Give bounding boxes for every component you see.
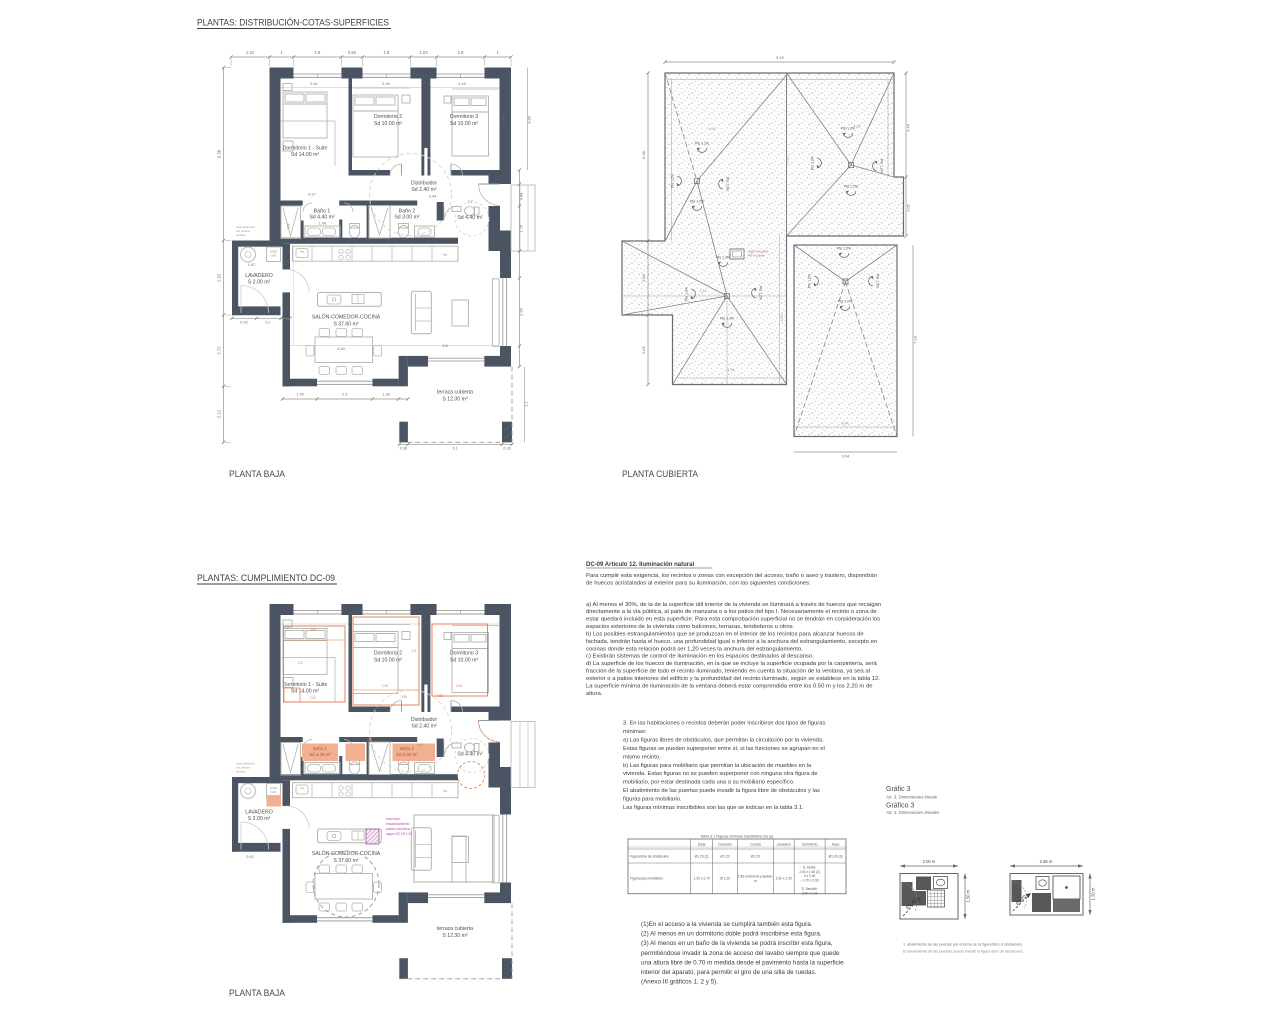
svg-text:Ø1.20: Ø1.20 [721,855,730,859]
svg-text:1. abatimiento de las puertas: 1. abatimiento de las puertas por encima… [903,943,1022,947]
svg-text:4.98: 4.98 [502,117,506,124]
svg-text:(Anexo III gráficos 1, 2 y 5).: (Anexo III gráficos 1, 2 y 5). [641,979,718,986]
svg-text:Art. 3. Dimensiones lineale: Art. 3. Dimensiones lineale [886,795,938,800]
svg-text:0.88: 0.88 [417,743,424,747]
svg-text:c) Existirán sistemas de contr: c) Existirán sistemas de control de ilum… [586,654,814,660]
svg-text:6.20: 6.20 [786,157,790,164]
svg-text:Lavadero: Lavadero [777,843,791,847]
svg-text:fracción de la superficie de t: fracción de la superficie de todo el rec… [586,669,870,675]
svg-text:PLANTAS: CUMPLIMIENTO DC-09: PLANTAS: CUMPLIMIENTO DC-09 [197,573,335,584]
svg-text:b) Los posibles estrangulamien: b) Los posibles estrangulamientos que se… [586,632,864,638]
svg-text:PLANTA CUBIERTA: PLANTA CUBIERTA [622,469,699,480]
svg-text:2.56: 2.56 [520,308,524,315]
svg-text:Estas figuras se pueden superp: Estas figuras se pueden superponer entre… [623,746,825,752]
svg-text:una altura libre de 0.70 m med: una altura libre de 0.70 m medida desde … [641,959,844,966]
svg-text:Comedor: Comedor [718,843,733,847]
svg-text:1.67: 1.67 [248,263,255,267]
svg-text:0.36: 0.36 [503,447,510,451]
svg-text:Sd 4.40 m²: Sd 4.40 m² [309,752,331,757]
svg-text:Las figuras mínimas inscribibl: Las figuras mínimas inscribibles son las… [623,805,804,811]
svg-text:3.94: 3.94 [842,454,851,459]
svg-text:0.1: 0.1 [265,321,270,325]
svg-text:1.8: 1.8 [314,50,320,55]
svg-text:Para cumplir esta exigencia, l: Para cumplir esta exigencia, los recinto… [586,573,877,579]
svg-text:Figura para mobiliario: Figura para mobiliario [630,877,663,881]
svg-text:3. En las habitaciones o recin: 3. En las habitaciones o recintos deberá… [623,721,825,727]
svg-text:HS-3 cocina: HS-3 cocina [748,254,765,258]
svg-text:Art. 3. Dimensiones lineales: Art. 3. Dimensiones lineales [885,810,940,815]
svg-text:1.2: 1.2 [467,200,472,204]
svg-text:1: 1 [497,50,500,55]
svg-text:de huecos acristalados al exte: de huecos acristalados al exterior para … [586,580,811,586]
svg-text:4.34: 4.34 [709,127,716,131]
svg-text:2.49: 2.49 [382,82,389,86]
svg-text:Baño 1: Baño 1 [313,746,327,751]
svg-text:9.19: 9.19 [776,55,785,60]
svg-text:DC-09 Artículo 12. Iluminació: DC-09 Artículo 12. Iluminación natural [586,562,694,568]
svg-text:Ø 1.20: Ø 1.20 [720,877,730,881]
svg-text:1.25: 1.25 [296,393,303,397]
svg-text:3.44: 3.44 [429,195,436,199]
svg-text:2.72: 2.72 [217,346,222,355]
svg-text:fachada, tendrán hasta el huec: fachada, tendrán hasta el hueco, una pro… [586,639,877,645]
svg-text:0.36: 0.36 [400,447,407,451]
svg-text:(3) Al menos en un baño de la: (3) Al menos en un baño de la vivienda s… [641,940,833,947]
svg-text:(1)En el acceso a la vivienda: (1)En el acceso a la vivienda se cumplir… [641,921,813,928]
svg-text:0.80: 0.80 [401,695,408,699]
svg-text:d) La superficie de los huecos: d) La superficie de los huecos de ilumin… [586,661,877,667]
svg-text:según DC-09 1.20: según DC-09 1.20 [386,832,412,836]
svg-text:1.35: 1.35 [382,393,389,397]
svg-text:0.9: 0.9 [368,738,373,742]
svg-text:2.65 m: 2.65 m [1040,859,1053,864]
svg-text:puerta corredera: puerta corredera [386,827,410,831]
svg-text:2.28: 2.28 [780,315,784,322]
svg-text:Estar: Estar [698,843,707,847]
svg-text:Figura libre de obstáculos: Figura libre de obstáculos [630,855,669,859]
svg-text:1.70: 1.70 [520,225,524,232]
svg-text:2.61: 2.61 [310,82,317,86]
svg-text:4.60: 4.60 [337,347,344,351]
svg-text:2.49: 2.49 [458,82,465,86]
svg-text:Ø1.20: Ø1.20 [751,855,760,859]
svg-text:6.38: 6.38 [217,149,222,158]
svg-text:Ø1.20 (1): Ø1.20 (1) [695,855,709,859]
svg-text:estar quedará incluido en esta: estar quedará incluido en esta superfici… [586,617,880,623]
svg-text:2.05: 2.05 [906,203,911,212]
svg-text:1.42: 1.42 [246,50,255,55]
svg-text:2.3: 2.3 [342,393,347,397]
svg-text:El abatimiento de las puertas: El abatimiento de las puertas puede inva… [903,950,1023,954]
svg-text:4.08: 4.08 [854,125,861,129]
svg-text:Cocina: Cocina [750,843,761,847]
svg-text:2.20 x 1.20: 2.20 x 1.20 [776,877,792,881]
svg-text:3.60: 3.60 [310,628,317,632]
svg-text:1.8: 1.8 [298,661,303,665]
svg-text:Gráfic 3: Gráfic 3 [886,786,911,793]
svg-text:÷ 1.70 x 0.90: ÷ 1.70 x 0.90 [800,878,819,882]
svg-text:altura.: altura. [586,691,603,697]
svg-text:PLANTA BAJA: PLANTA BAJA [229,469,286,480]
svg-text:Tabla 3.1 Figuras mínimas ins: Tabla 3.1 Figuras mínimas inscribibles (… [701,835,774,839]
svg-text:a) Al menos el 30%, de la de l: a) Al menos el 30%, de la de la superfic… [586,602,881,608]
svg-text:La superficie mínima de ilumin: La superficie mínima de iluminación de l… [586,683,873,689]
svg-text:a) Las figuras libres de obstá: a) Las figuras libres de obstáculos, que… [623,737,824,743]
svg-text:vivienda. Estas figuras no se: vivienda. Estas figuras no se pueden sup… [623,771,818,777]
svg-text:2.12: 2.12 [217,409,222,418]
svg-text:ensanchamiento: ensanchamiento [386,822,410,826]
svg-text:4.34: 4.34 [728,368,735,372]
svg-text:2.80: 2.80 [641,273,646,282]
svg-text:ro: ro [754,879,757,883]
svg-text:3.84: 3.84 [842,422,849,426]
svg-text:4.27: 4.27 [308,193,315,197]
svg-text:directamente a la vía pública,: directamente a la vía pública, al patio … [586,609,878,615]
svg-text:El abatimiento de las puertas: El abatimiento de las puertas puede inva… [623,788,820,794]
svg-text:figuras para mobiliario.: figuras para mobiliario. [623,797,682,803]
svg-text:0.92: 0.92 [246,855,253,859]
svg-text:(2) Al menos en un dormitorio: (2) Al menos en un dormitorio doble podr… [641,931,822,938]
svg-text:0.88: 0.88 [520,193,524,200]
svg-text:2.61: 2.61 [310,696,317,700]
svg-text:6.38: 6.38 [641,150,646,159]
svg-text:2.1: 2.1 [525,401,529,406]
svg-text:PLANTA BAJA: PLANTA BAJA [229,988,286,999]
svg-text:0.92: 0.92 [240,321,247,325]
svg-text:1.8: 1.8 [458,50,464,55]
svg-text:3.85: 3.85 [528,116,532,123]
svg-text:0.8: 0.8 [287,224,291,229]
svg-text:3.8: 3.8 [442,344,447,348]
svg-text:1.40: 1.40 [319,222,326,226]
svg-text:exterior o a patios interiores: exterior o a patios interiores del edifi… [586,676,880,682]
svg-text:b) Las figuras para mobiliario: b) Las figuras para mobiliario que permi… [623,763,812,769]
svg-text:Baño 2: Baño 2 [400,746,414,751]
svg-text:espacios exteriores de la vivi: espacios exteriores de la vivienda como … [586,624,795,630]
svg-text:cocinas donde esta relación po: cocinas donde esta relación podrá ser 1,… [586,646,803,652]
svg-text:mismo recinto.: mismo recinto. [623,754,661,760]
svg-text:2.49: 2.49 [382,684,389,688]
svg-text:Ø1.20 (3): Ø1.20 (3) [829,855,843,859]
svg-text:1.50 m: 1.50 m [966,889,971,902]
svg-text:permitiéndose invadir la zona: permitiéndose invadir la zona de acceso … [641,950,840,957]
svg-text:0.82: 0.82 [437,694,444,698]
svg-text:0.9: 0.9 [412,649,417,653]
svg-text:1.20 x 2.70: 1.20 x 2.70 [693,877,709,881]
svg-text:2.00 m: 2.00 m [923,859,936,864]
svg-text:1.8: 1.8 [383,50,389,55]
svg-text:1.14: 1.14 [700,289,707,293]
svg-text:Gráfico 3: Gráfico 3 [886,803,915,810]
svg-text:Dormitorio: Dormitorio [802,843,818,847]
svg-text:1.03: 1.03 [419,50,428,55]
svg-text:1.20 m: 1.20 m [1091,887,1096,900]
svg-text:mínimas:: mínimas: [623,729,647,735]
svg-text:2.52: 2.52 [217,273,222,282]
svg-text:PLANTAS: DISTRIBUCIÓN-COTAS-SU: PLANTAS: DISTRIBUCIÓN-COTAS-SUPERFICIES [197,18,389,29]
svg-text:0.84: 0.84 [348,50,357,55]
svg-text:zona func.: zona func. [386,817,401,821]
svg-text:interior del aparato, para per: interior del aparato, para permitir el g… [641,969,817,976]
svg-text:3.1: 3.1 [452,447,457,451]
svg-text:7.18: 7.18 [913,335,918,344]
svg-text:Aseo: Aseo [832,843,840,847]
svg-text:4.44: 4.44 [906,123,911,132]
svg-text:1.80 encimera y lavade-: 1.80 encimera y lavade- [738,875,773,879]
svg-text:1: 1 [280,50,283,55]
svg-text:2.00 x 1.20: 2.00 x 1.20 [802,891,818,895]
svg-text:Sd 3.00 m²: Sd 3.00 m² [396,752,418,757]
svg-text:mobiliario, por estar destinad: mobiliario, por estar destinada cada una… [623,780,795,786]
svg-text:2.61: 2.61 [641,345,646,354]
svg-text:2.49: 2.49 [456,684,463,688]
